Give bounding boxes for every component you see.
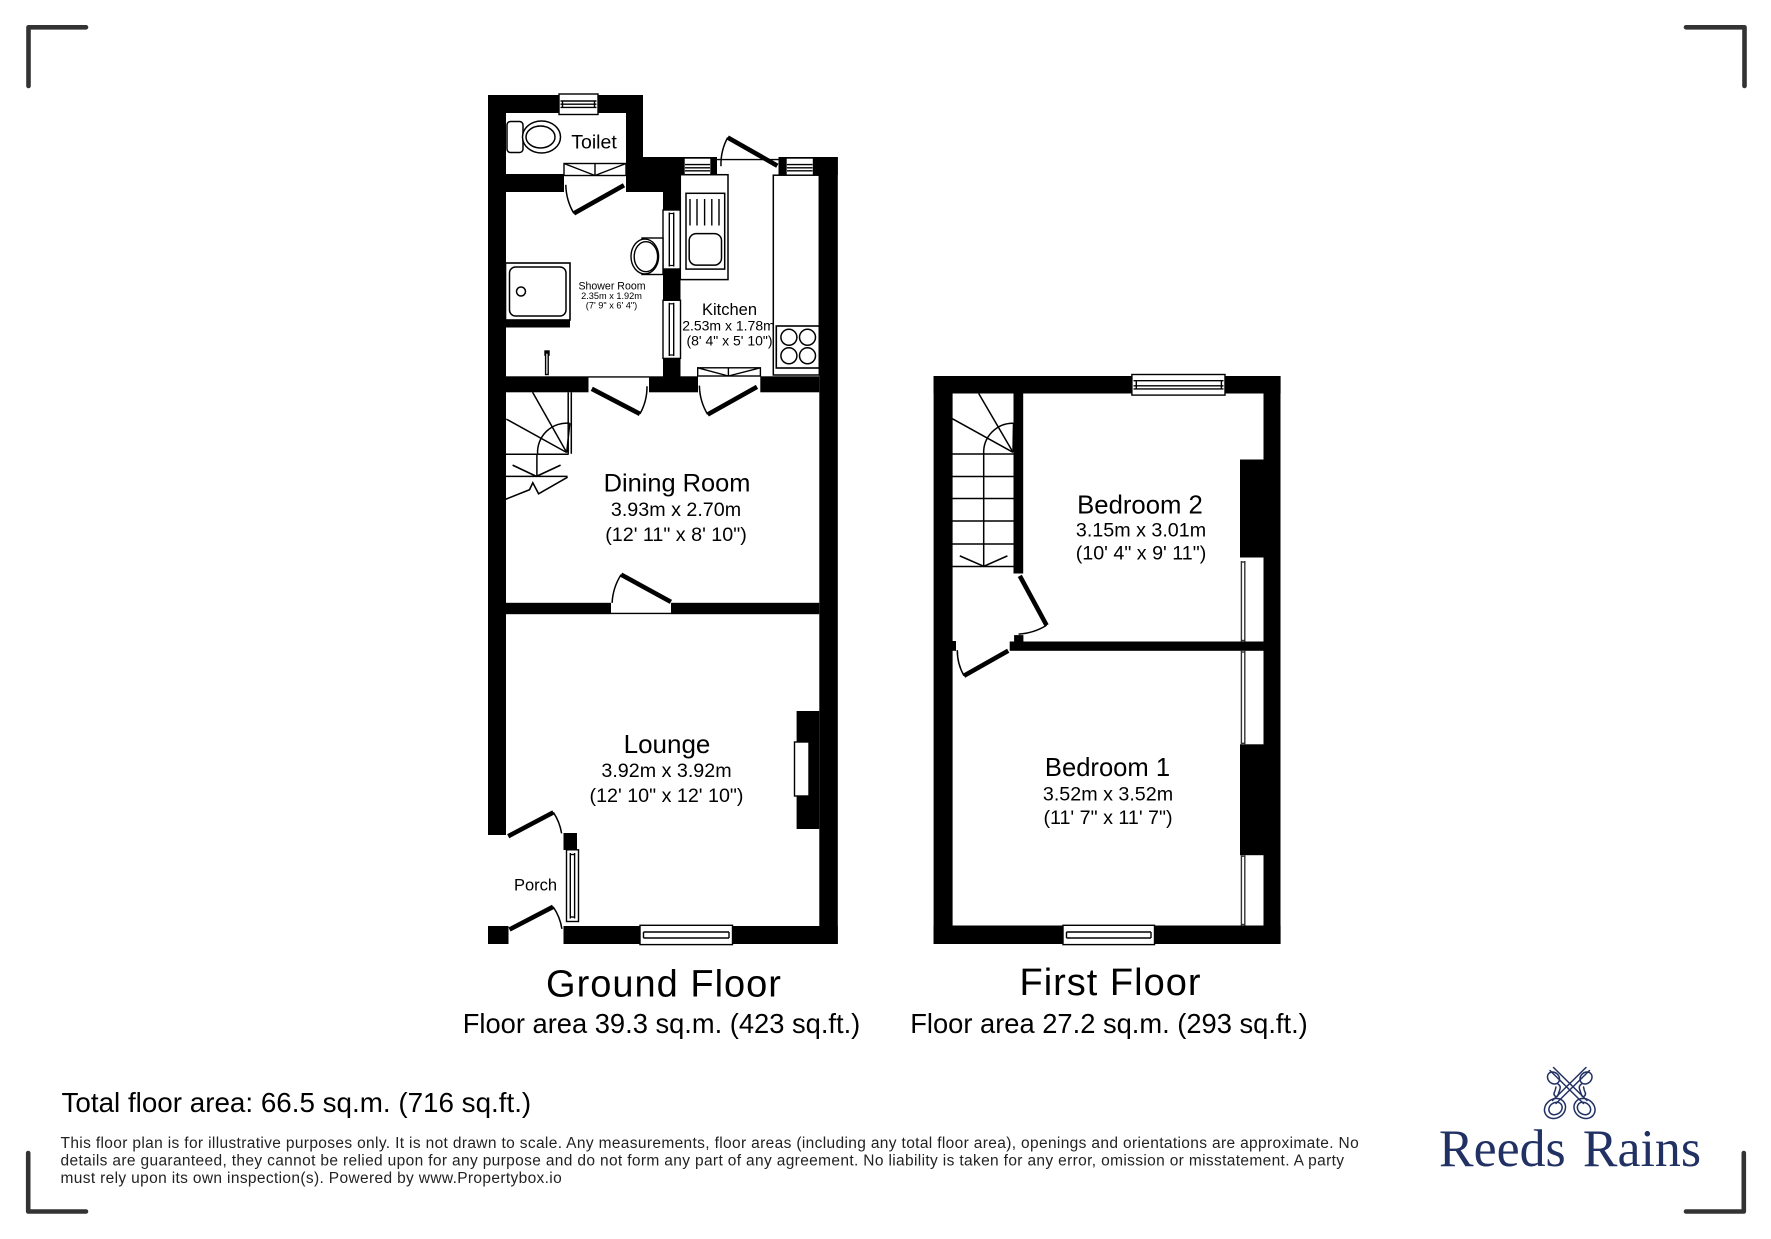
svg-text:3.52m x 3.52m: 3.52m x 3.52m <box>1043 784 1173 806</box>
svg-text:Lounge: Lounge <box>624 729 711 759</box>
svg-text:(8' 4" x 5' 10"): (8' 4" x 5' 10") <box>686 333 772 349</box>
svg-text:First Floor: First Floor <box>1020 962 1202 1004</box>
svg-text:This floor plan is for illustr: This floor plan is for illustrative purp… <box>61 1135 1360 1152</box>
svg-text:2.53m x 1.78m: 2.53m x 1.78m <box>682 318 775 334</box>
svg-text:(12' 11" x 8' 10"): (12' 11" x 8' 10") <box>605 524 747 546</box>
svg-text:Total floor area: 66.5 sq.m. (: Total floor area: 66.5 sq.m. (716 sq.ft.… <box>62 1087 532 1118</box>
svg-text:must rely upon its own inspect: must rely upon its own inspection(s). Po… <box>61 1170 563 1187</box>
svg-text:Bedroom 2: Bedroom 2 <box>1077 492 1203 520</box>
svg-text:(12' 10" x 12' 10"): (12' 10" x 12' 10") <box>590 785 744 807</box>
svg-text:3.92m x 3.92m: 3.92m x 3.92m <box>601 760 731 782</box>
svg-text:Toilet: Toilet <box>571 131 617 153</box>
svg-text:2.35m x 1.92m: 2.35m x 1.92m <box>581 291 642 301</box>
svg-text:3.15m x 3.01m: 3.15m x 3.01m <box>1076 520 1206 542</box>
svg-text:(11' 7" x 11' 7"): (11' 7" x 11' 7") <box>1043 807 1172 829</box>
svg-text:Kitchen: Kitchen <box>702 301 757 319</box>
svg-text:3.93m x 2.70m: 3.93m x 2.70m <box>611 499 741 521</box>
svg-text:Ground Floor: Ground Floor <box>546 964 782 1006</box>
svg-text:Floor area 27.2 sq.m. (293 sq.: Floor area 27.2 sq.m. (293 sq.ft.) <box>910 1008 1308 1039</box>
svg-text:(10' 4" x 9' 11"): (10' 4" x 9' 11") <box>1076 542 1207 564</box>
svg-text:Floor area 39.3 sq.m. (423 sq.: Floor area 39.3 sq.m. (423 sq.ft.) <box>463 1008 861 1039</box>
svg-text:Reeds Rains: Reeds Rains <box>1439 1120 1701 1178</box>
svg-text:Porch: Porch <box>514 877 557 895</box>
svg-text:Bedroom 1: Bedroom 1 <box>1045 754 1170 782</box>
svg-text:Dining Room: Dining Room <box>604 470 751 498</box>
svg-text:(7' 9" x 6' 4"): (7' 9" x 6' 4") <box>586 301 637 311</box>
svg-text:details are guaranteed, they c: details are guaranteed, they cannot be r… <box>61 1152 1345 1169</box>
